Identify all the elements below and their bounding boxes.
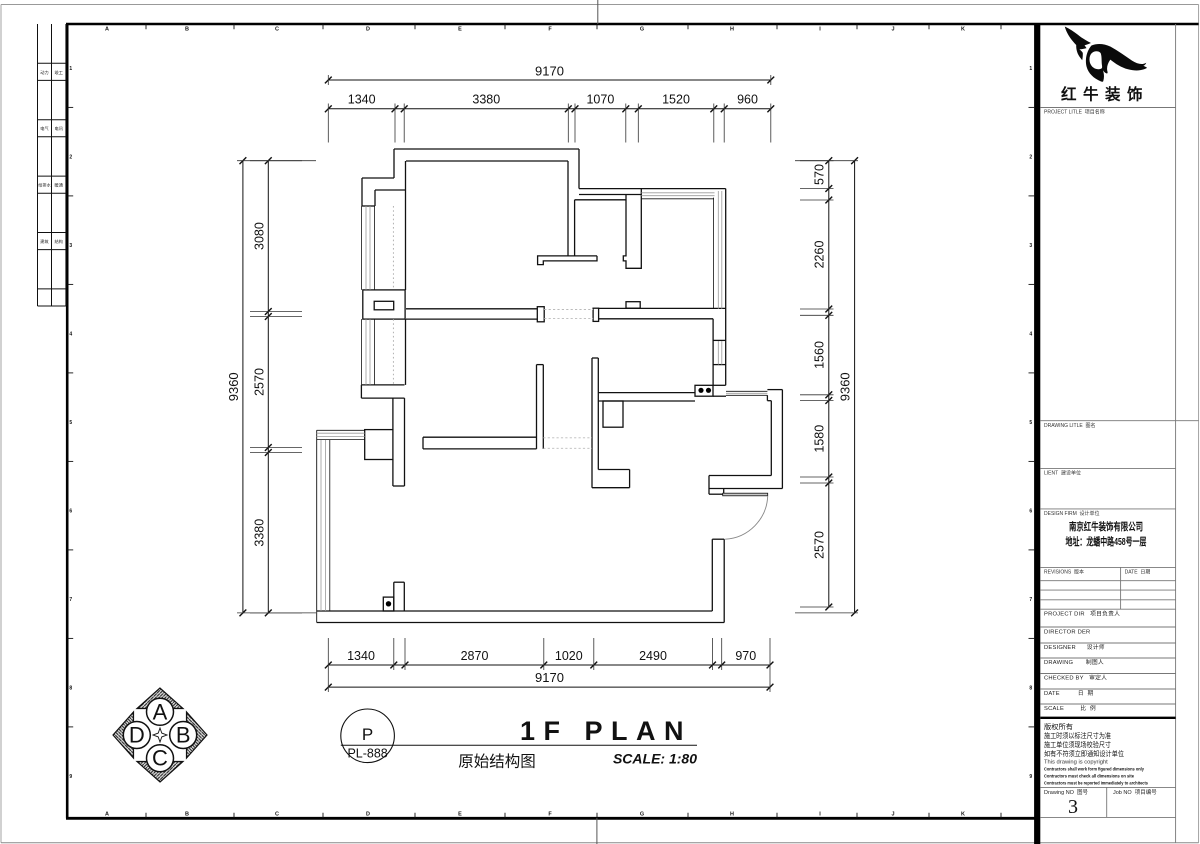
svg-text:970: 970	[735, 649, 756, 663]
svg-text:B: B	[185, 27, 189, 33]
svg-text:7: 7	[69, 597, 72, 603]
svg-text:2570: 2570	[253, 368, 267, 396]
svg-text:C: C	[275, 812, 279, 818]
svg-text:1560: 1560	[813, 341, 827, 369]
svg-text:8: 8	[1029, 686, 1032, 692]
svg-text:G: G	[640, 27, 644, 33]
svg-text:Drawing NO 图号: Drawing NO 图号	[1044, 788, 1089, 796]
svg-text:PL-888: PL-888	[347, 747, 387, 761]
svg-text:3380: 3380	[472, 93, 500, 107]
svg-text:2870: 2870	[461, 649, 489, 663]
svg-text:1520: 1520	[662, 93, 690, 107]
svg-text:570: 570	[813, 164, 827, 185]
svg-text:D: D	[366, 812, 370, 818]
svg-text:9170: 9170	[535, 670, 564, 685]
svg-text:K: K	[961, 27, 965, 33]
svg-text:9170: 9170	[535, 64, 564, 79]
svg-text:2260: 2260	[813, 241, 827, 269]
svg-text:红牛装饰: 红牛装饰	[1061, 85, 1149, 104]
svg-text:5: 5	[1029, 420, 1032, 426]
svg-text:原始结构图: 原始结构图	[458, 753, 536, 771]
svg-text:B: B	[185, 812, 189, 818]
svg-text:电讯: 电讯	[55, 125, 64, 132]
svg-text:DESIGN FIRM 设计单位: DESIGN FIRM 设计单位	[1044, 510, 1100, 517]
svg-text:DATE 日 期: DATE 日 期	[1044, 690, 1094, 697]
svg-text:3: 3	[69, 243, 72, 249]
svg-text:D: D	[366, 27, 370, 33]
svg-text:施工时须以标注尺寸为准: 施工时须以标注尺寸为准	[1044, 731, 1111, 740]
svg-text:1580: 1580	[813, 425, 827, 453]
svg-text:6: 6	[69, 509, 72, 515]
svg-text:建筑: 建筑	[40, 238, 49, 245]
svg-text:Job NO 项目编号: Job NO 项目编号	[1113, 788, 1157, 796]
svg-text:1070: 1070	[586, 93, 614, 107]
svg-text:Contractors must be reported i: Contractors must be reported immediately…	[1044, 781, 1148, 786]
svg-text:P: P	[362, 725, 373, 744]
svg-text:H: H	[730, 27, 734, 33]
svg-text:E: E	[458, 27, 462, 33]
svg-text:3080: 3080	[253, 222, 267, 250]
svg-text:8: 8	[69, 686, 72, 692]
svg-text:如有不符须立即通知设计单位: 如有不符须立即通知设计单位	[1044, 749, 1124, 758]
svg-text:4: 4	[1029, 332, 1032, 338]
svg-text:Contractors must check all dim: Contractors must check all dimensions on…	[1044, 774, 1134, 779]
svg-text:DESIGNER 设计师: DESIGNER 设计师	[1044, 643, 1105, 651]
svg-text:南京红牛装饰有限公司: 南京红牛装饰有限公司	[1069, 520, 1143, 533]
svg-text:B: B	[176, 723, 191, 748]
svg-text:暖通: 暖通	[55, 182, 64, 189]
svg-text:K: K	[961, 812, 965, 818]
svg-text:竣工: 竣工	[55, 69, 63, 76]
svg-text:C: C	[275, 27, 279, 33]
svg-text:3: 3	[1029, 243, 1032, 249]
svg-text:DATE 日期: DATE 日期	[1125, 570, 1151, 576]
svg-text:施工单位须现场校验尺寸: 施工单位须现场校验尺寸	[1044, 740, 1111, 749]
svg-text:1: 1	[1029, 66, 1032, 72]
svg-text:J: J	[891, 27, 894, 33]
svg-text:J: J	[891, 812, 894, 818]
svg-text:SCALE 比 例: SCALE 比 例	[1044, 704, 1096, 712]
svg-text:结构: 结构	[55, 238, 63, 245]
svg-text:动力: 动力	[40, 69, 48, 76]
svg-text:3380: 3380	[253, 519, 267, 547]
svg-text:SCALE: 1:80: SCALE: 1:80	[613, 751, 697, 767]
svg-text:DIRECTOR DER: DIRECTOR DER	[1044, 630, 1090, 636]
svg-text:1340: 1340	[347, 649, 375, 663]
svg-text:D: D	[129, 723, 145, 748]
svg-text:LIENT 建设单位: LIENT 建设单位	[1044, 470, 1081, 477]
svg-text:E: E	[458, 812, 462, 818]
svg-text:PROJECT DIR 项目负责人: PROJECT DIR 项目负责人	[1044, 610, 1120, 618]
svg-text:2490: 2490	[639, 649, 667, 663]
svg-text:C: C	[152, 746, 168, 771]
svg-text:地址：龙蟠中路458号一层: 地址：龙蟠中路458号一层	[1066, 535, 1147, 548]
svg-text:2: 2	[69, 155, 72, 161]
svg-text:2570: 2570	[813, 531, 827, 559]
svg-text:9: 9	[69, 774, 72, 780]
svg-text:9360: 9360	[226, 372, 241, 401]
svg-text:A: A	[153, 699, 168, 724]
svg-text:DRAWING LITLE 图名: DRAWING LITLE 图名	[1044, 422, 1096, 429]
svg-text:9360: 9360	[838, 372, 853, 401]
svg-text:1: 1	[69, 66, 72, 72]
svg-text:G: G	[640, 812, 644, 818]
svg-text:960: 960	[737, 93, 758, 107]
svg-text:REVISIONS 版本: REVISIONS 版本	[1044, 569, 1084, 576]
svg-text:电气: 电气	[40, 125, 49, 131]
svg-text:DRAWING 制图人: DRAWING 制图人	[1044, 658, 1104, 666]
svg-text:1340: 1340	[348, 93, 376, 107]
svg-text:3: 3	[1068, 796, 1078, 818]
svg-text:1F PLAN: 1F PLAN	[520, 716, 692, 746]
svg-text:9: 9	[1029, 774, 1032, 780]
svg-text:A: A	[105, 812, 109, 818]
svg-text:This drawing is copyright: This drawing is copyright	[1044, 760, 1108, 766]
svg-text:4: 4	[69, 332, 72, 338]
svg-text:6: 6	[1029, 509, 1032, 515]
svg-text:PROJECT LITLE 项目名称: PROJECT LITLE 项目名称	[1044, 109, 1105, 116]
svg-text:7: 7	[1029, 597, 1032, 603]
svg-text:版权所有: 版权所有	[1044, 722, 1073, 731]
svg-text:2: 2	[1029, 155, 1032, 161]
svg-text:A: A	[105, 27, 109, 33]
svg-text:给排水: 给排水	[38, 182, 51, 189]
svg-text:5: 5	[69, 420, 72, 426]
svg-text:H: H	[730, 812, 734, 818]
svg-text:Contractors shall work form fi: Contractors shall work form figured dime…	[1044, 767, 1144, 772]
svg-text:CHECKED BY 审定人: CHECKED BY 审定人	[1044, 674, 1107, 682]
svg-text:1020: 1020	[555, 649, 583, 663]
